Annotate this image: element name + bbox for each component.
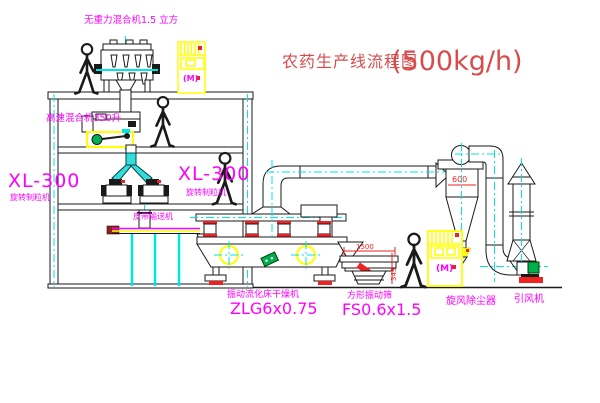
person-ground [401,234,425,287]
high-speed-mixer-label: 高速混合机350升 [46,112,122,124]
granulator-left-model: XL-300 [8,170,80,192]
fan-label: 引风机 [514,292,544,305]
y-chute [112,153,152,182]
sieve-length-dimension: 1500 [356,243,374,251]
cabinet-motor-mark: (M) [183,74,198,83]
sieve-model: FS0.6x1.5 [342,300,421,319]
cyclone-label: 旋风除尘器 [446,294,496,307]
diagram-capacity: (500kg/h) [391,46,523,77]
belt-conveyor [107,226,208,286]
cad-flow-diagram: (M) [0,0,600,403]
cyclone-dimension: 600 [452,175,467,184]
gravity-mixer-label: 无重力混合机1.5 立方 [84,14,178,26]
granulator-right [138,179,169,203]
belt-conveyor-label: 皮带输送机 [133,211,173,221]
induced-draft-fan [517,262,543,283]
granulator-left-name: 旋转制粒机 [10,192,50,202]
control-cabinet-lower: (M) [428,231,462,286]
vibrating-sieve: 1500 345 [338,242,398,284]
person-second-floor [151,97,173,146]
exhaust-duct [263,160,460,240]
dryer-model: ZLG6x0.75 [230,299,318,318]
spring-mounts [203,221,331,237]
cabinet-motor-mark: (M) [436,264,453,274]
granulator-right-model: XL-300 [178,163,250,185]
fluid-bed-dryer [190,205,350,285]
drawing-surface: (M) [0,0,600,403]
granulator-left [101,179,132,203]
sieve-height-dimension: 345 [390,268,398,281]
control-cabinet-upper: (M) [178,42,205,93]
granulator-right-name: 旋转制粒机 [186,187,226,197]
